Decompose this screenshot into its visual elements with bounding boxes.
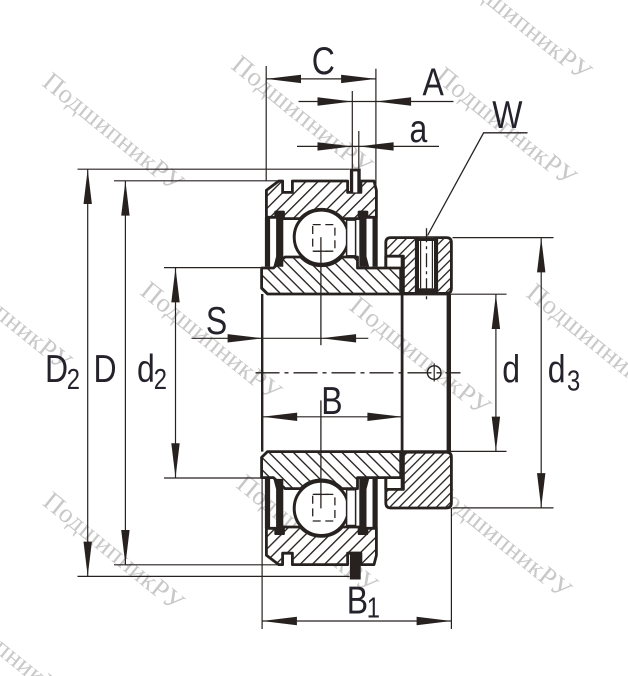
svg-text:d: d xyxy=(137,347,155,391)
svg-text:2: 2 xyxy=(154,363,167,396)
svg-text:W: W xyxy=(492,93,522,137)
svg-text:S: S xyxy=(206,299,227,343)
svg-text:a: a xyxy=(410,107,428,151)
svg-text:B: B xyxy=(321,379,342,423)
svg-text:2: 2 xyxy=(67,363,80,396)
svg-text:C: C xyxy=(312,39,335,83)
svg-text:D: D xyxy=(45,347,68,391)
svg-text:3: 3 xyxy=(567,364,580,397)
svg-text:d: d xyxy=(548,348,566,392)
svg-text:D: D xyxy=(94,347,117,391)
svg-text:1: 1 xyxy=(367,591,380,624)
svg-text:A: A xyxy=(423,61,445,105)
svg-text:B: B xyxy=(347,579,368,623)
svg-text:d: d xyxy=(502,348,520,392)
